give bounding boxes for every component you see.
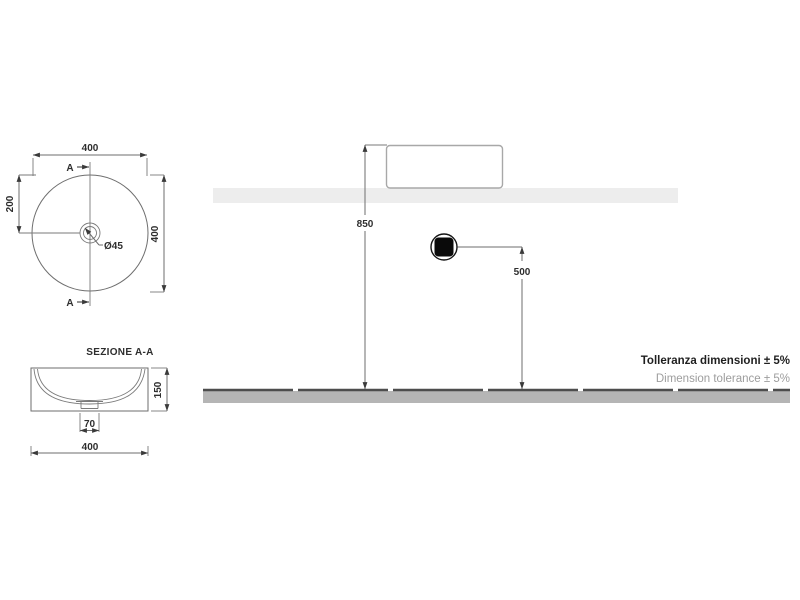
- basin-section-outline: [31, 368, 148, 411]
- dim-label-outlet-height: 500: [514, 267, 531, 278]
- technical-drawing-sheet: 400 200 400 Ø45 A A: [0, 0, 800, 600]
- dim-label-center-offset: 200: [5, 195, 16, 212]
- dim-section-width: 400: [31, 442, 148, 456]
- drawing-svg: 400 200 400 Ø45 A A: [0, 0, 800, 600]
- dim-label-plan-height: 400: [150, 225, 161, 242]
- waste-outlet-square: [435, 238, 454, 257]
- dim-section-height: 150: [151, 368, 167, 411]
- dim-label-drain-width: 70: [84, 419, 96, 430]
- dim-label-top-width: 400: [82, 143, 99, 154]
- section-title: SEZIONE A-A: [86, 347, 153, 358]
- counter-shelf: [213, 188, 678, 203]
- bowl-inner-curve: [38, 369, 142, 401]
- bowl-outer-curve: [34, 369, 145, 404]
- dim-label-drain-diameter: Ø45: [104, 241, 123, 252]
- section-marker-top: A: [66, 163, 89, 174]
- dim-label-section-width: 400: [82, 442, 99, 453]
- section-marker-bottom: A: [66, 298, 89, 309]
- section-drain: [76, 402, 103, 409]
- dim-plan-height: 400: [150, 175, 164, 292]
- dim-center-offset: 200: [5, 175, 80, 233]
- tolerance-note-english: Dimension tolerance ± 5%: [656, 373, 790, 385]
- tolerance-note-italian: Tolleranza dimensioni ± 5%: [641, 355, 790, 367]
- floor: [203, 390, 790, 403]
- tolerance-note: Tolleranza dimensioni ± 5% Dimension tol…: [641, 355, 790, 385]
- basin-elevation: [387, 146, 503, 189]
- section-marker-top-label: A: [66, 163, 73, 174]
- top-view: 400 200 400 Ø45 A A: [5, 143, 164, 309]
- waste-outlet-symbol: [431, 234, 457, 260]
- dim-drain-diameter: Ø45: [85, 228, 123, 252]
- dim-label-rim-height: 850: [357, 219, 374, 230]
- dim-drain-width: 70: [80, 413, 99, 432]
- dim-rim-height: 850: [357, 145, 387, 389]
- section-view: SEZIONE A-A 150 70: [31, 347, 167, 456]
- dim-label-section-height: 150: [153, 381, 164, 398]
- floor-band: [203, 391, 790, 403]
- dim-outlet-height: 500: [458, 247, 531, 389]
- section-marker-bottom-label: A: [66, 298, 73, 309]
